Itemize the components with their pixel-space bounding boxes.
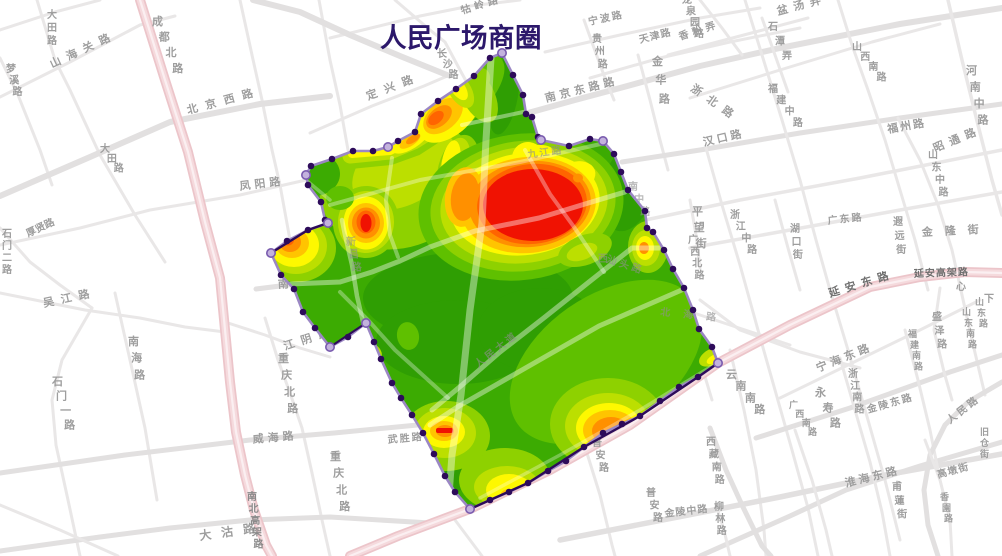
svg-text:街: 街	[896, 508, 907, 521]
svg-text:柳: 柳	[714, 500, 724, 513]
svg-text:北: 北	[336, 482, 347, 496]
svg-text:路: 路	[13, 85, 24, 98]
svg-text:潭: 潭	[775, 34, 785, 47]
svg-text:路: 路	[939, 186, 950, 199]
svg-text:泉: 泉	[685, 4, 697, 17]
svg-text:下: 下	[984, 293, 994, 305]
svg-text:梦: 梦	[6, 62, 17, 75]
svg-text:石: 石	[51, 375, 63, 388]
svg-text:南: 南	[912, 350, 921, 361]
svg-text:望: 望	[694, 220, 705, 234]
svg-text:溪: 溪	[9, 74, 20, 87]
svg-text:街: 街	[979, 448, 989, 459]
svg-text:二: 二	[2, 252, 12, 264]
svg-text:沙: 沙	[443, 59, 453, 71]
svg-text:路: 路	[968, 339, 978, 350]
svg-text:路: 路	[599, 461, 610, 474]
svg-text:路: 路	[598, 57, 609, 70]
svg-text:河: 河	[966, 63, 977, 77]
svg-text:南: 南	[712, 460, 722, 473]
svg-text:安: 安	[650, 499, 660, 512]
svg-text:东: 东	[932, 161, 942, 174]
svg-text:路: 路	[287, 401, 299, 415]
svg-text:山: 山	[962, 306, 971, 317]
svg-text:路: 路	[134, 367, 146, 381]
svg-text:北: 北	[692, 257, 702, 270]
svg-text:路: 路	[352, 260, 363, 273]
svg-text:口: 口	[792, 237, 802, 248]
svg-text:藏: 藏	[709, 448, 719, 461]
svg-text:林: 林	[715, 512, 726, 525]
svg-text:昌: 昌	[349, 249, 359, 261]
svg-text:人民广场商圈: 人民广场商圈	[380, 23, 542, 53]
svg-text:西: 西	[706, 436, 716, 448]
svg-text:浙: 浙	[848, 367, 858, 380]
svg-text:东: 东	[964, 317, 973, 328]
svg-text:浙: 浙	[730, 208, 740, 221]
svg-text:南: 南	[247, 490, 257, 503]
svg-text:西: 西	[690, 246, 700, 258]
svg-text:江: 江	[736, 220, 746, 233]
svg-text:路: 路	[914, 361, 924, 372]
svg-text:平: 平	[692, 205, 703, 218]
svg-text:路: 路	[808, 426, 818, 437]
svg-text:北: 北	[166, 45, 177, 59]
svg-text:遐: 遐	[893, 216, 903, 228]
svg-text:建: 建	[910, 339, 920, 350]
svg-text:石: 石	[1, 228, 12, 240]
svg-text:福: 福	[767, 82, 778, 95]
svg-text:弄: 弄	[781, 50, 792, 62]
svg-text:中: 中	[785, 105, 795, 118]
svg-text:盛: 盛	[932, 310, 942, 323]
svg-text:远: 远	[895, 230, 905, 242]
svg-text:新: 新	[346, 235, 356, 248]
svg-text:路: 路	[855, 402, 866, 415]
svg-text:重: 重	[330, 449, 341, 463]
svg-text:云: 云	[726, 368, 737, 381]
svg-text:南: 南	[735, 379, 746, 393]
svg-text:贵: 贵	[592, 32, 602, 45]
svg-text:路: 路	[172, 61, 184, 75]
svg-text:高: 高	[250, 514, 260, 527]
svg-text:中: 中	[741, 231, 751, 244]
svg-text:街: 街	[792, 248, 803, 261]
svg-text:重: 重	[278, 351, 289, 365]
svg-text:路: 路	[715, 473, 726, 486]
svg-text:山: 山	[852, 40, 862, 53]
svg-text:路: 路	[747, 243, 758, 256]
svg-text:大: 大	[47, 8, 57, 21]
svg-text:架: 架	[251, 526, 262, 539]
svg-text:香: 香	[939, 491, 950, 502]
svg-text:安: 安	[596, 449, 606, 462]
svg-text:东: 东	[977, 307, 986, 318]
svg-text:江: 江	[850, 379, 860, 392]
svg-text:心: 心	[956, 281, 966, 293]
svg-text:路: 路	[944, 513, 954, 524]
svg-text:西: 西	[598, 253, 608, 265]
svg-text:湖: 湖	[790, 222, 800, 235]
svg-text:南: 南	[868, 60, 878, 73]
svg-text:路: 路	[2, 263, 13, 276]
svg-text:永: 永	[814, 385, 827, 399]
svg-text:路: 路	[254, 538, 265, 551]
svg-text:路: 路	[717, 524, 728, 537]
svg-text:路: 路	[114, 162, 125, 175]
svg-text:华: 华	[655, 73, 666, 87]
svg-text:路: 路	[978, 113, 990, 127]
svg-text:寿: 寿	[823, 400, 834, 414]
svg-text:门: 门	[2, 239, 12, 252]
svg-text:山: 山	[928, 148, 938, 161]
svg-text:中: 中	[974, 96, 985, 110]
svg-text:路: 路	[695, 268, 706, 281]
svg-text:仓: 仓	[979, 437, 990, 448]
svg-text:石: 石	[767, 21, 778, 33]
svg-text:山: 山	[975, 296, 984, 307]
svg-text:都: 都	[158, 30, 170, 44]
svg-text:路: 路	[830, 416, 842, 430]
svg-text:金: 金	[651, 54, 664, 68]
svg-text:路: 路	[754, 402, 766, 416]
svg-text:北: 北	[249, 502, 259, 515]
svg-text:蓮: 蓮	[895, 494, 905, 507]
svg-text:街: 街	[895, 243, 906, 256]
svg-text:州: 州	[594, 46, 605, 58]
svg-text:成: 成	[152, 14, 163, 28]
svg-text:龙: 龙	[681, 0, 692, 6]
svg-text:北: 北	[284, 384, 295, 398]
svg-text:门: 门	[56, 388, 67, 402]
svg-text:南: 南	[970, 80, 981, 94]
svg-text:建: 建	[775, 93, 787, 106]
svg-text:甫: 甫	[892, 480, 902, 493]
svg-text:路: 路	[449, 68, 460, 81]
svg-text:路: 路	[64, 417, 76, 431]
svg-text:路: 路	[653, 511, 664, 524]
svg-text:南: 南	[966, 328, 975, 339]
svg-text:庆: 庆	[332, 466, 344, 480]
svg-text:路: 路	[937, 338, 948, 351]
svg-text:中: 中	[935, 173, 945, 186]
svg-text:一: 一	[60, 405, 71, 417]
svg-text:广: 广	[688, 233, 698, 246]
svg-text:路: 路	[339, 499, 351, 513]
svg-text:路: 路	[979, 318, 989, 329]
svg-text:泽: 泽	[935, 324, 945, 337]
svg-text:庆: 庆	[280, 368, 292, 382]
svg-text:普: 普	[646, 486, 656, 499]
svg-text:路: 路	[659, 91, 671, 105]
svg-text:福: 福	[907, 328, 917, 339]
svg-text:路: 路	[47, 34, 58, 47]
svg-text:路: 路	[793, 116, 804, 129]
svg-text:南: 南	[128, 334, 139, 348]
svg-text:南: 南	[745, 390, 756, 404]
svg-text:旧: 旧	[980, 426, 989, 437]
svg-text:田: 田	[47, 22, 57, 34]
svg-text:路: 路	[877, 70, 888, 83]
svg-text:海: 海	[131, 351, 142, 365]
svg-text:園: 園	[942, 503, 951, 513]
svg-text:南: 南	[852, 391, 862, 404]
